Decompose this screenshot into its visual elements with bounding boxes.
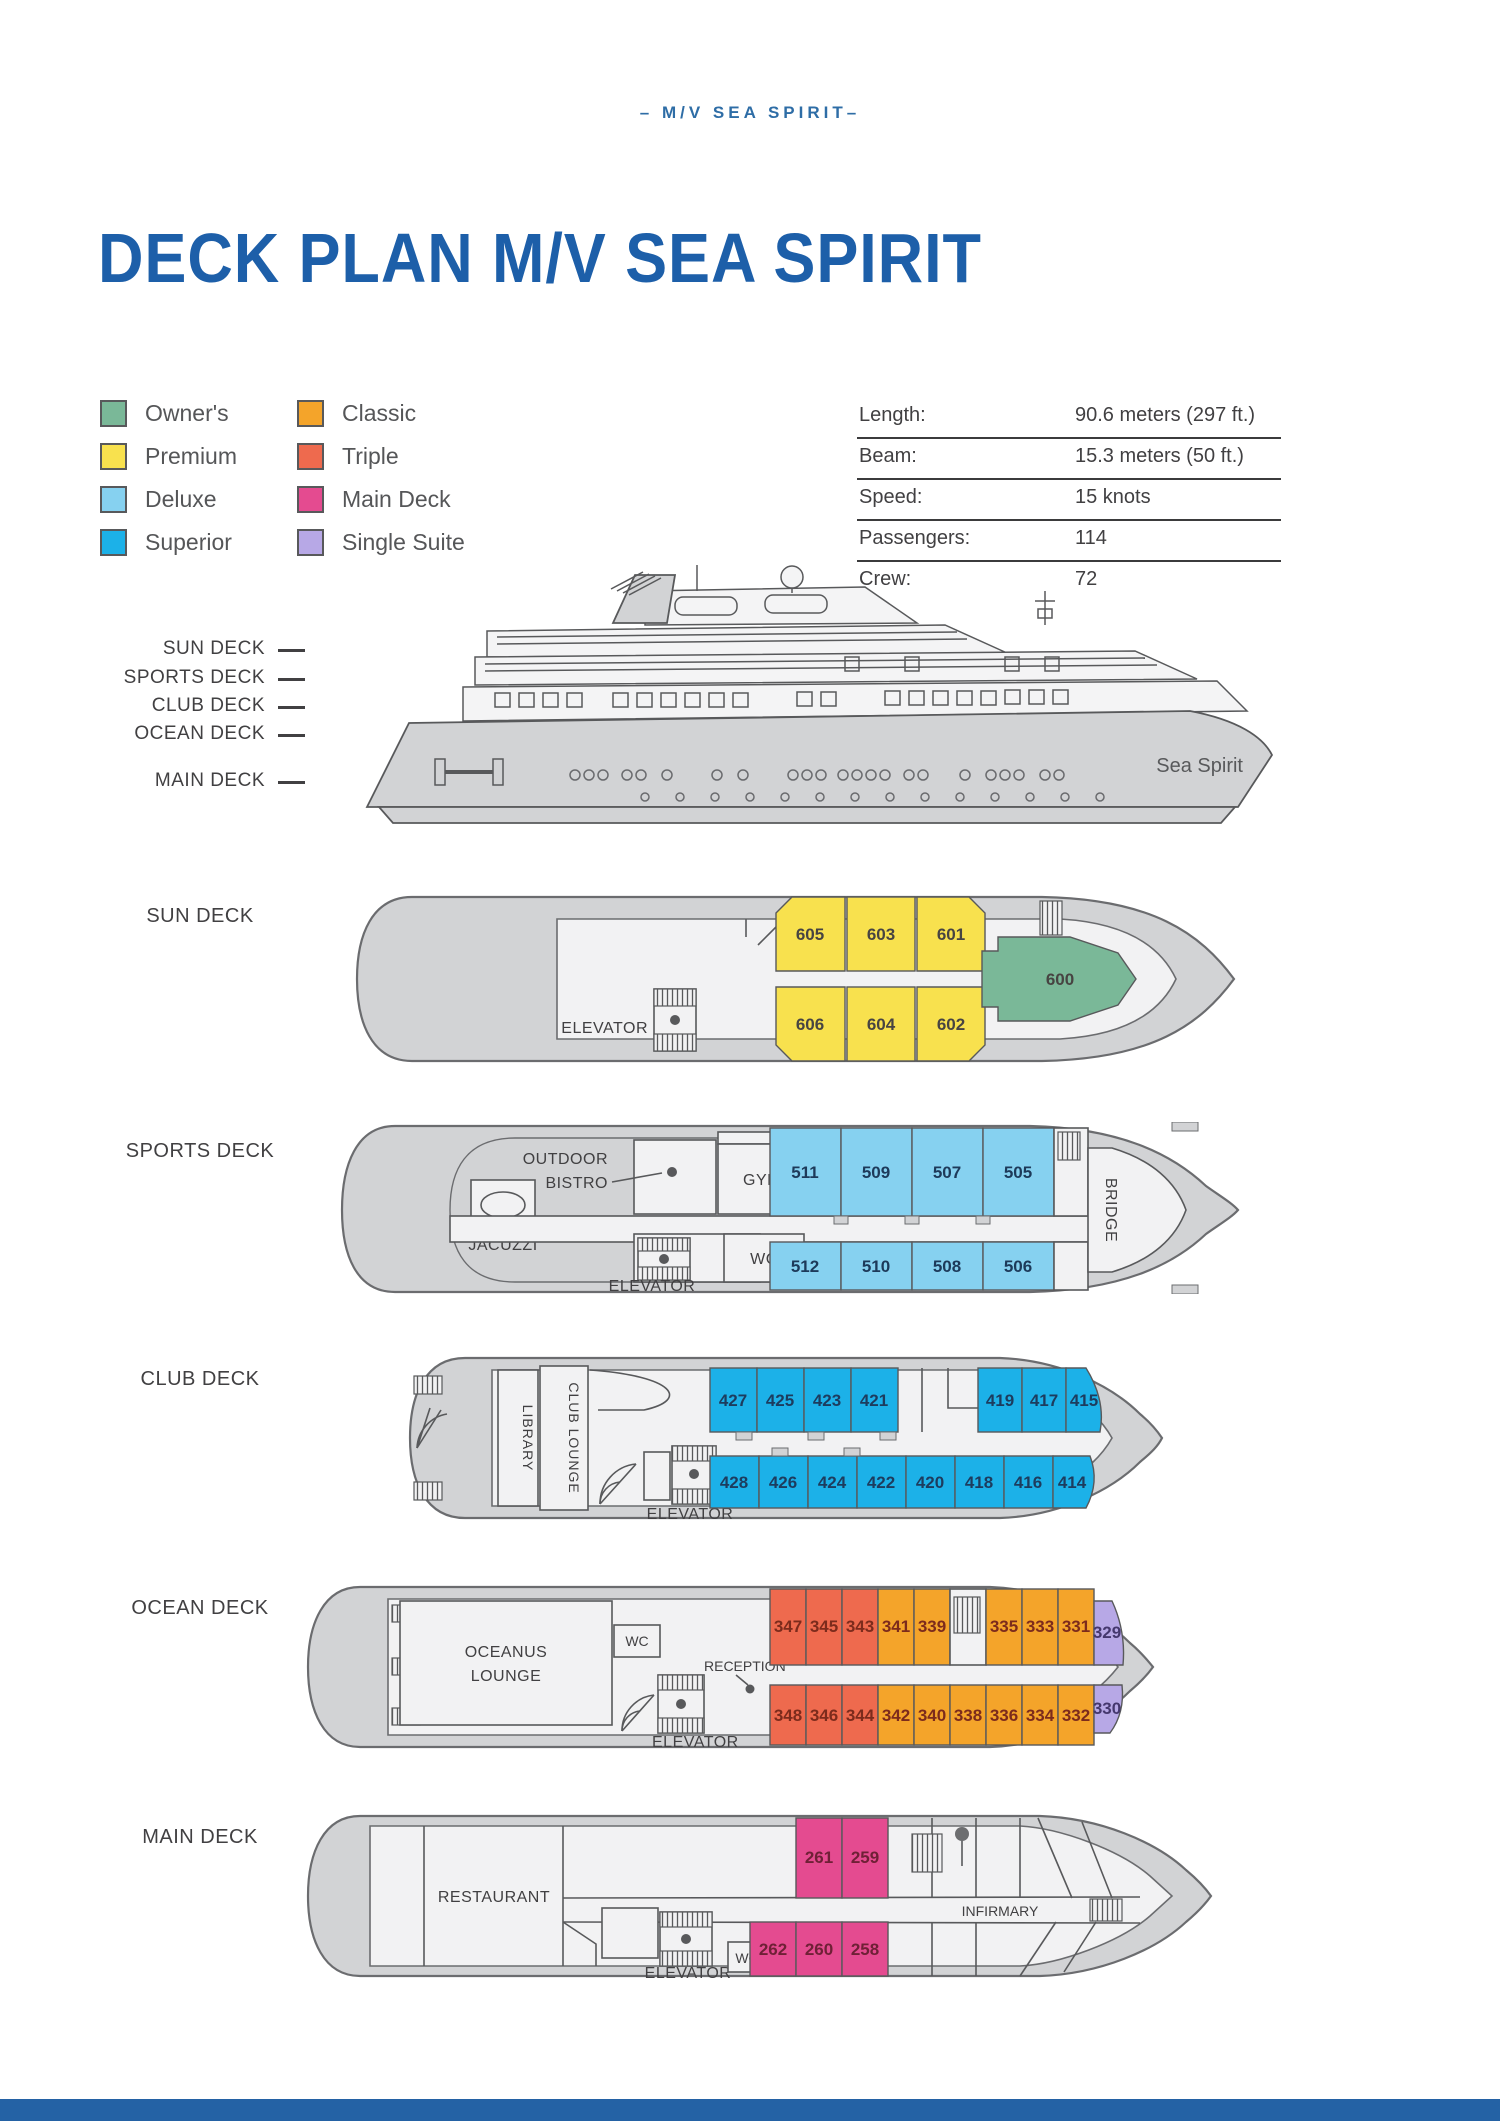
stairs-icon xyxy=(414,1376,442,1394)
cabin-number: 341 xyxy=(882,1617,910,1636)
spec-value: 114 xyxy=(1075,527,1107,550)
spec-value: 15.3 meters (50 ft.) xyxy=(1075,445,1244,468)
cabin-number: 334 xyxy=(1026,1706,1055,1725)
legend-swatch-triple xyxy=(297,443,324,470)
legend-swatch-classic xyxy=(297,400,324,427)
spec-row-length: Length: 90.6 meters (297 ft.) xyxy=(857,398,1281,439)
cabin-number: 418 xyxy=(965,1473,993,1492)
oceanus-lounge-room xyxy=(400,1601,612,1725)
spec-label: Passengers: xyxy=(859,527,970,550)
stairs-icon xyxy=(414,1482,442,1500)
legend-label: Single Suite xyxy=(342,529,465,556)
club-lounge-label: CLUB LOUNGE xyxy=(566,1382,582,1493)
club-deck-plan: LIBRARY CLUB LOUNGE ELEVATOR xyxy=(300,1352,1240,1524)
tick-dash xyxy=(278,678,305,681)
elevator-label: ELEVATOR xyxy=(561,1020,648,1037)
library-label: LIBRARY xyxy=(520,1405,536,1472)
legend-item: Main Deck xyxy=(297,486,451,513)
bridge-label: BRIDGE xyxy=(1102,1178,1119,1242)
cabin-number: 415 xyxy=(1070,1391,1098,1410)
legend-item: Classic xyxy=(297,400,416,427)
ship-name-on-hull: Sea Spirit xyxy=(1156,755,1243,777)
spec-label: Beam: xyxy=(859,445,917,468)
legend-item: Single Suite xyxy=(297,529,465,556)
column-icon xyxy=(955,1827,969,1841)
sun-deck-label: SUN DECK xyxy=(70,905,330,928)
cabin-number: 425 xyxy=(766,1391,794,1410)
stairs-icon xyxy=(1090,1899,1122,1921)
jacuzzi-icon xyxy=(481,1192,525,1218)
cabin-number: 509 xyxy=(862,1163,890,1182)
cabin-number: 604 xyxy=(867,1015,896,1034)
cabin-number: 424 xyxy=(818,1473,847,1492)
ocean-deck-plan: OCEANUS LOUNGE WC ELEVATOR RECEPTION xyxy=(300,1581,1240,1753)
main-deck-plan: RESTAURANT ELEVATOR WC 261 259 262 260 2… xyxy=(300,1810,1240,1982)
cabin-number: 420 xyxy=(916,1473,944,1492)
cabin-number: 601 xyxy=(937,925,965,944)
elevator-label: ELEVATOR xyxy=(609,1278,696,1294)
legend-item: Owner's xyxy=(100,400,229,427)
cabin-number: 423 xyxy=(813,1391,841,1410)
cabin-number: 338 xyxy=(954,1706,982,1725)
ship-profile-illustration: Sea Spirit xyxy=(345,565,1275,855)
tick-dash xyxy=(278,781,305,784)
cabin-number: 428 xyxy=(720,1473,748,1492)
legend-label: Deluxe xyxy=(145,486,217,513)
cabin-number: 507 xyxy=(933,1163,961,1182)
cabin-number: 416 xyxy=(1014,1473,1042,1492)
spec-label: Speed: xyxy=(859,486,922,509)
spec-value: 90.6 meters (297 ft.) xyxy=(1075,404,1255,427)
cabin-number: 603 xyxy=(867,925,895,944)
cabin-number: 259 xyxy=(851,1848,879,1867)
elevator-stairs-icon xyxy=(660,1912,712,1966)
cabin-number: 261 xyxy=(805,1848,833,1867)
cabin-number: 333 xyxy=(1026,1617,1054,1636)
tick-dash xyxy=(278,706,305,709)
deck-plan-page: – M/V SEA SPIRIT– DECK PLAN M/V SEA SPIR… xyxy=(0,0,1500,2121)
page-header: – M/V SEA SPIRIT– xyxy=(0,103,1500,123)
sports-deck-structure xyxy=(645,587,917,625)
cabin-number: 419 xyxy=(986,1391,1014,1410)
legend-swatch-superior xyxy=(100,529,127,556)
spec-value: 15 knots xyxy=(1075,486,1151,509)
spec-row-speed: Speed: 15 knots xyxy=(857,480,1281,521)
cabin-number: 258 xyxy=(851,1940,879,1959)
elevator-label: ELEVATOR xyxy=(645,1965,732,1982)
legend-swatch-single-suite xyxy=(297,529,324,556)
spec-row-beam: Beam: 15.3 meters (50 ft.) xyxy=(857,439,1281,480)
cabin-number: 511 xyxy=(791,1163,818,1182)
elevator-stairs-icon xyxy=(654,989,696,1051)
keel-band xyxy=(379,807,1235,823)
cabin-number: 339 xyxy=(918,1617,946,1636)
legend-label: Main Deck xyxy=(342,486,451,513)
cabin-number: 262 xyxy=(759,1940,787,1959)
footer-bar xyxy=(0,2099,1500,2121)
wc-label: WC xyxy=(625,1633,648,1649)
sports-deck-plan: GYM OUTDOOR BISTRO JACUZZI WC ELEVATOR 5… xyxy=(300,1122,1240,1294)
cabin-number: 422 xyxy=(867,1473,895,1492)
main-deck-label: MAIN DECK xyxy=(70,1826,330,1849)
cabin-number: 505 xyxy=(1004,1163,1032,1182)
cabin-number: 421 xyxy=(860,1391,888,1410)
sports-deck-label: SPORTS DECK xyxy=(70,1140,330,1163)
stairs-icon xyxy=(912,1834,942,1872)
radar-dome xyxy=(781,566,803,588)
outdoor-bistro-room xyxy=(634,1140,716,1214)
cabin-number: 260 xyxy=(805,1940,833,1959)
profile-label-ocean-deck: OCEAN DECK xyxy=(70,723,265,745)
page-title: DECK PLAN M/V SEA SPIRIT xyxy=(98,218,982,298)
cabin-number: 508 xyxy=(933,1257,961,1276)
fore-mast xyxy=(1035,591,1055,625)
cabin-number: 342 xyxy=(882,1706,910,1725)
sun-deck-plan: ELEVATOR 605 603 601 606 604 602 600 xyxy=(300,893,1240,1065)
cabin-number: 512 xyxy=(791,1257,819,1276)
cabin-number: 330 xyxy=(1093,1699,1121,1718)
elevator-stairs-icon xyxy=(658,1675,704,1733)
profile-label-club-deck: CLUB DECK xyxy=(70,695,265,717)
cabin-number: 427 xyxy=(719,1391,747,1410)
cabin-number: 426 xyxy=(769,1473,797,1492)
legend-swatch-owners xyxy=(100,400,127,427)
profile-label-sun-deck: SUN DECK xyxy=(70,638,265,660)
cabin-number: 329 xyxy=(1093,1623,1121,1642)
tick-dash xyxy=(278,734,305,737)
stairs-icon xyxy=(954,1597,980,1633)
oceanus-lounge-label-line1: OCEANUS xyxy=(465,1644,548,1661)
cabin-number: 340 xyxy=(918,1706,946,1725)
cabin-number: 344 xyxy=(846,1706,875,1725)
cabin-number: 332 xyxy=(1062,1706,1090,1725)
legend-label: Triple xyxy=(342,443,399,470)
tick-dash xyxy=(278,649,305,652)
cabin-number: 510 xyxy=(862,1257,890,1276)
cabin-number: 346 xyxy=(810,1706,838,1725)
cabin-number: 336 xyxy=(990,1706,1018,1725)
ocean-deck-label: OCEAN DECK xyxy=(70,1597,330,1620)
legend-label: Premium xyxy=(145,443,237,470)
cabin-number: 414 xyxy=(1058,1473,1087,1492)
stairs-icon xyxy=(1040,901,1062,935)
cabin-number: 345 xyxy=(810,1617,838,1636)
cabin-number: 600 xyxy=(1046,970,1074,989)
cabin-number: 605 xyxy=(796,925,824,944)
legend-swatch-premium xyxy=(100,443,127,470)
spec-label: Length: xyxy=(859,404,926,427)
cabin-number: 335 xyxy=(990,1617,1018,1636)
cabin-number: 606 xyxy=(796,1015,824,1034)
legend-swatch-main-deck xyxy=(297,486,324,513)
legend-item: Triple xyxy=(297,443,399,470)
cabin-number: 506 xyxy=(1004,1257,1032,1276)
outdoor-bistro-label-line2: BISTRO xyxy=(545,1175,608,1192)
cabin-number: 347 xyxy=(774,1617,802,1636)
cabin-number: 348 xyxy=(774,1706,802,1725)
oceanus-lounge-label-line2: LOUNGE xyxy=(471,1668,542,1685)
cabin-number: 331 xyxy=(1062,1617,1090,1636)
legend-label: Superior xyxy=(145,529,232,556)
stairs-icon xyxy=(1058,1132,1080,1160)
restaurant-label: RESTAURANT xyxy=(438,1889,550,1906)
profile-label-sports-deck: SPORTS DECK xyxy=(70,667,265,689)
elevator-stairs-icon xyxy=(638,1238,690,1280)
outdoor-bistro-label-line1: OUTDOOR xyxy=(523,1151,608,1168)
cabin-number: 602 xyxy=(937,1015,965,1034)
legend-item: Premium xyxy=(100,443,237,470)
legend-label: Classic xyxy=(342,400,416,427)
legend-item: Superior xyxy=(100,529,232,556)
legend-swatch-deluxe xyxy=(100,486,127,513)
club-deck-label: CLUB DECK xyxy=(70,1368,330,1391)
legend-item: Deluxe xyxy=(100,486,217,513)
elevator-label: ELEVATOR xyxy=(652,1734,739,1751)
profile-label-main-deck: MAIN DECK xyxy=(70,770,265,792)
spec-row-passengers: Passengers: 114 xyxy=(857,521,1281,562)
infirmary-label: INFIRMARY xyxy=(962,1903,1039,1919)
cabin-number: 417 xyxy=(1030,1391,1058,1410)
legend-label: Owner's xyxy=(145,400,229,427)
cabin-number: 343 xyxy=(846,1617,874,1636)
